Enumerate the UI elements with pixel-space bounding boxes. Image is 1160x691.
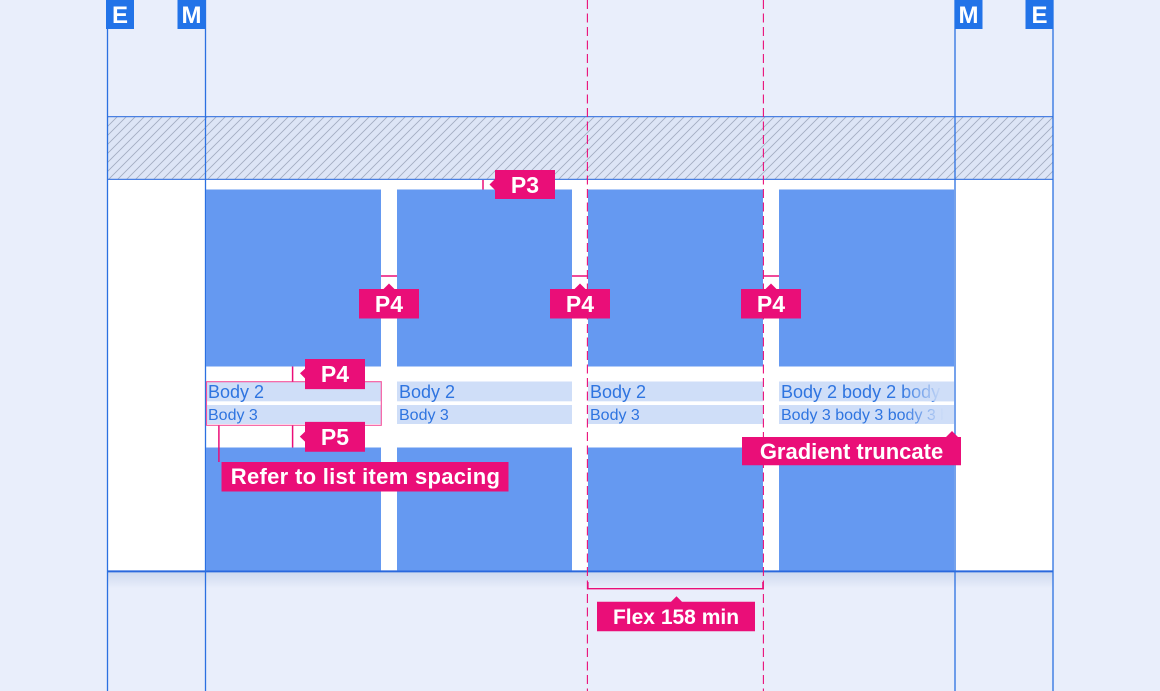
svg-text:Gradient truncate: Gradient truncate: [760, 439, 943, 464]
svg-text:E: E: [112, 2, 128, 29]
svg-text:M: M: [959, 2, 979, 29]
svg-text:Refer to list item spacing: Refer to list item spacing: [231, 464, 500, 489]
svg-text:Body 3: Body 3: [208, 407, 258, 424]
svg-text:Body 2: Body 2: [590, 382, 646, 402]
svg-text:P3: P3: [511, 172, 539, 198]
svg-text:P4: P4: [375, 291, 403, 317]
svg-text:Flex 158 min: Flex 158 min: [613, 606, 739, 629]
svg-text:Body 3: Body 3: [399, 407, 449, 424]
svg-text:P4: P4: [566, 291, 594, 317]
svg-text:Body 2: Body 2: [208, 382, 264, 402]
svg-text:Body 3: Body 3: [590, 407, 640, 424]
svg-text:Body 2: Body 2: [399, 382, 455, 402]
svg-text:P4: P4: [321, 361, 349, 387]
svg-text:E: E: [1031, 2, 1047, 29]
svg-text:P4: P4: [757, 291, 785, 317]
svg-text:M: M: [182, 2, 202, 29]
svg-text:P5: P5: [321, 424, 349, 450]
